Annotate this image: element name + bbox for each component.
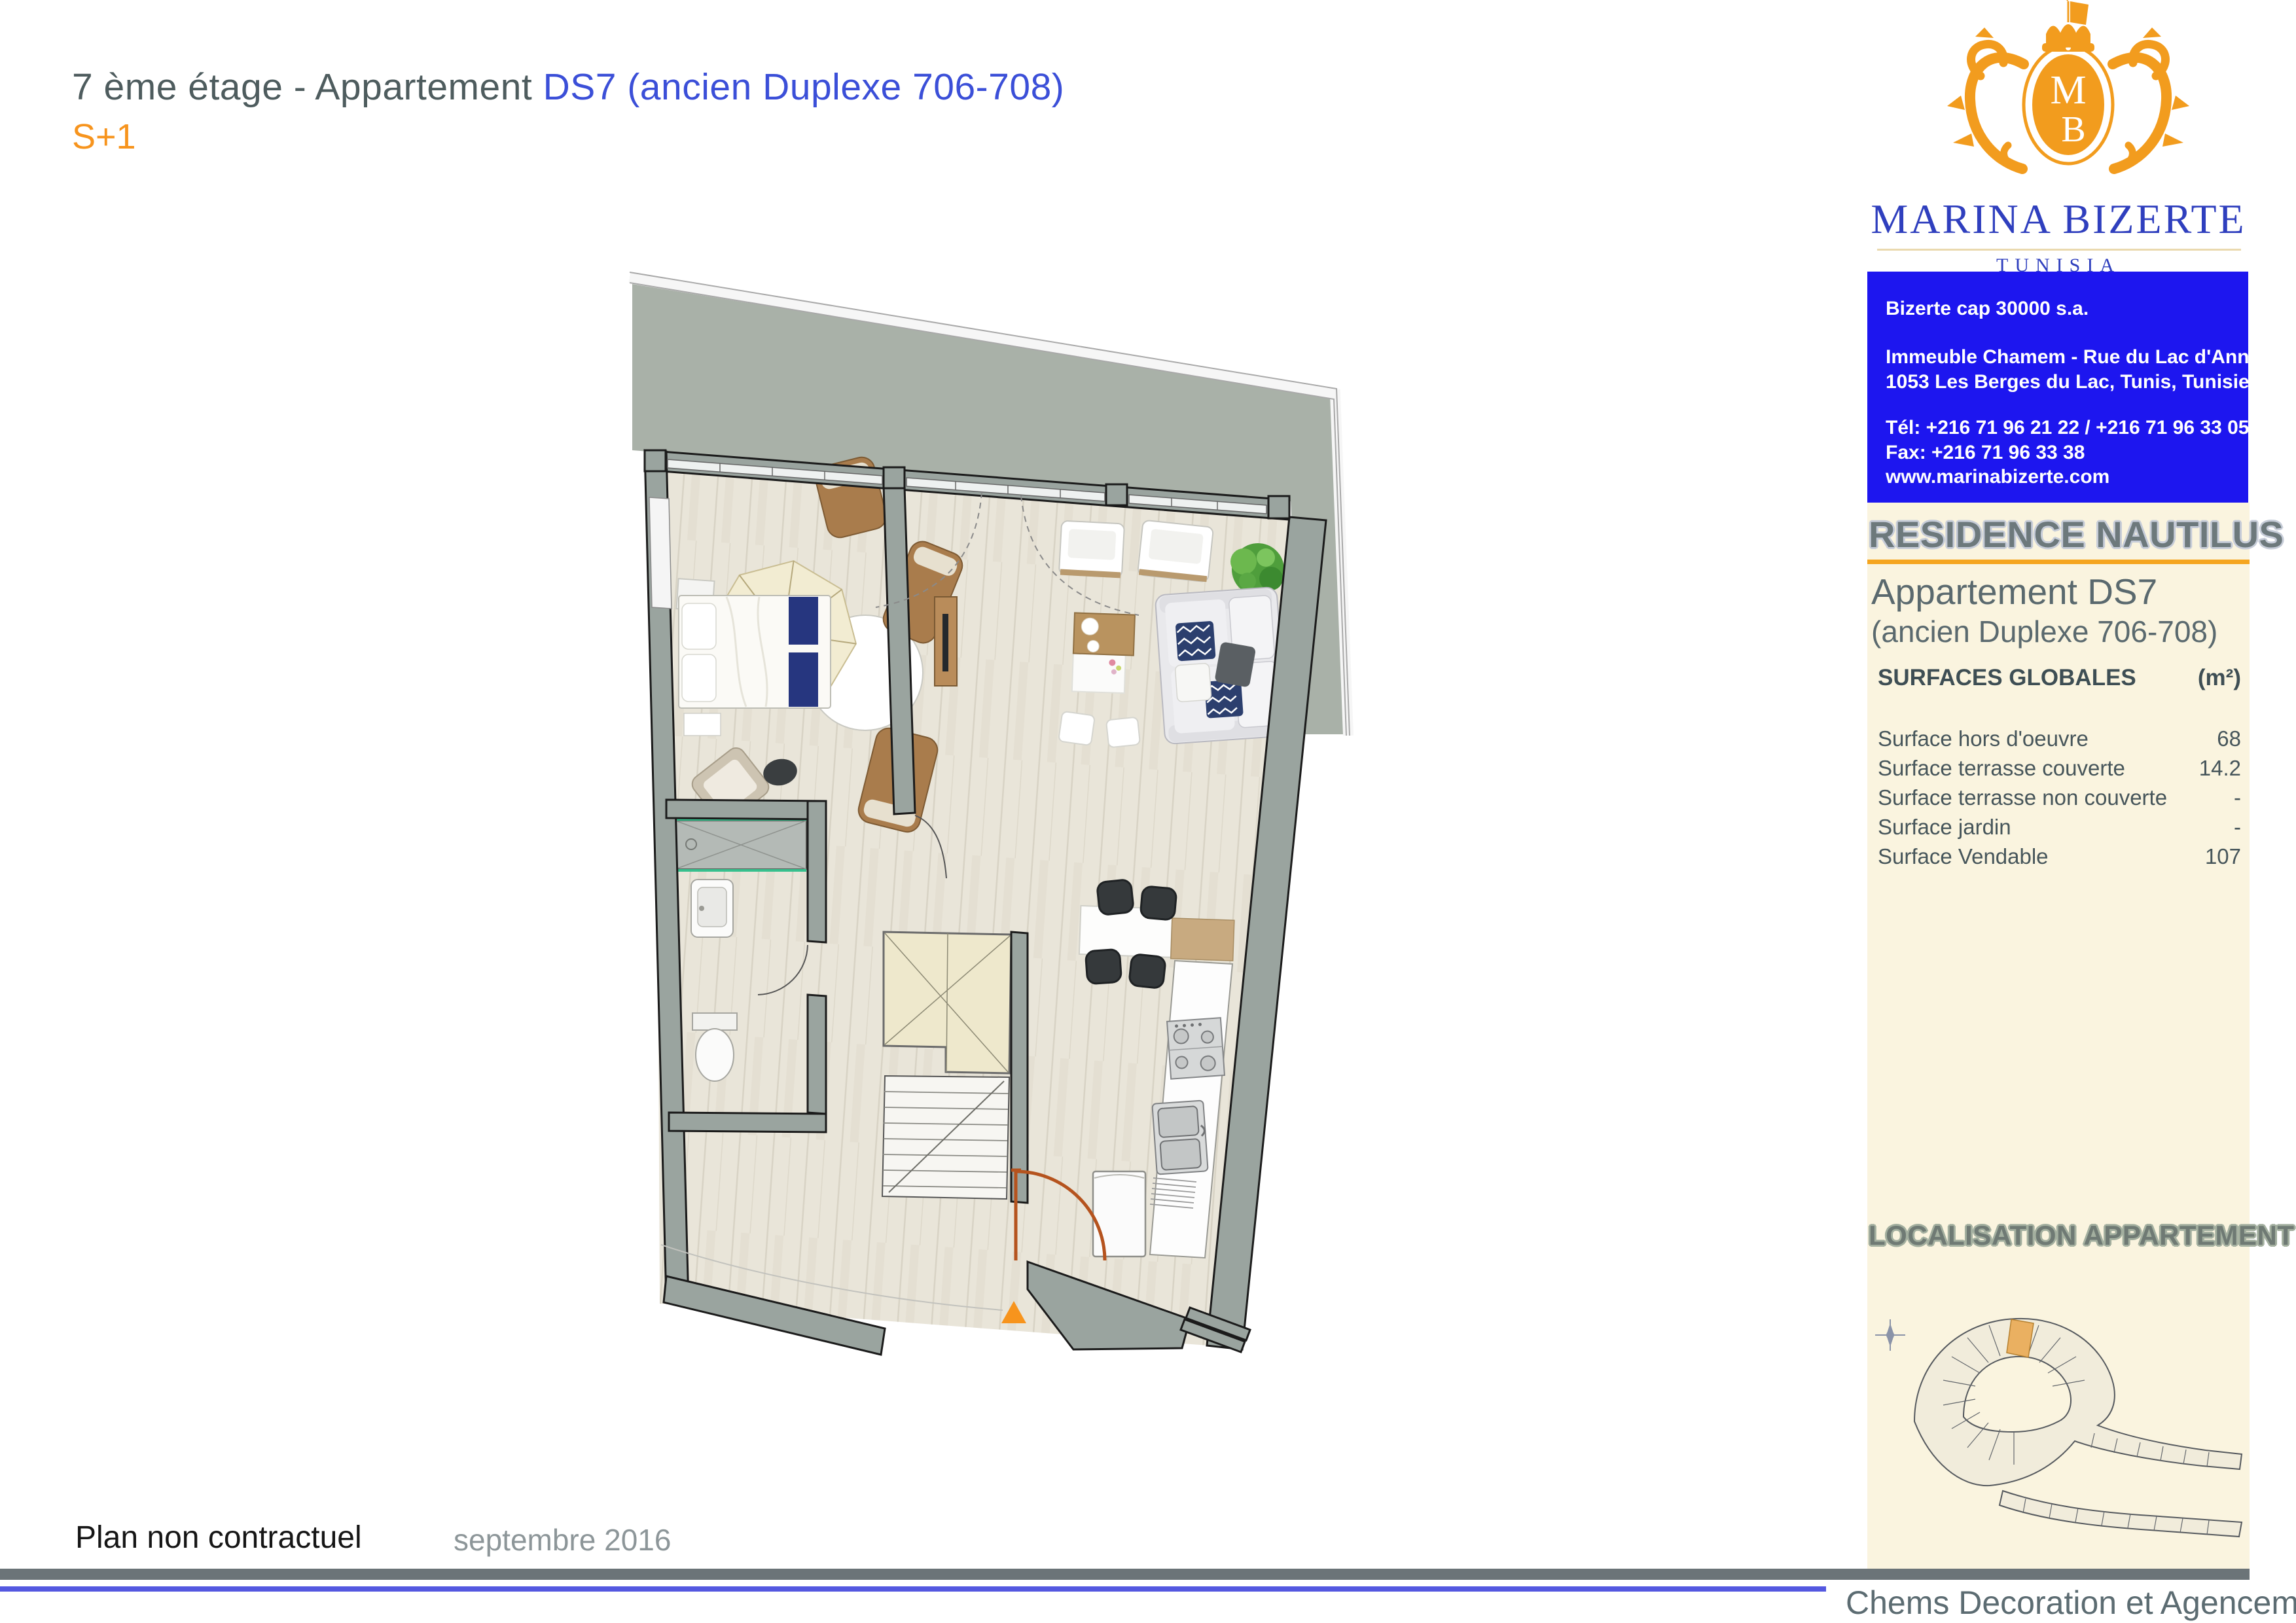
floor-cushion — [1106, 717, 1140, 748]
floor-cushion — [1058, 711, 1095, 746]
surface-row: Surface terrasse couverte 14.2 — [1878, 753, 2241, 783]
dining-chair — [1129, 954, 1166, 988]
contact-company: Bizerte cap 30000 s.a. — [1886, 298, 2089, 320]
highlighted-unit — [2007, 1319, 2034, 1357]
wall-shaft-right — [1011, 932, 1028, 1203]
fridge — [1093, 1171, 1145, 1257]
apartment-subtitle: (ancien Duplexe 706-708) — [1871, 614, 2217, 649]
surface-value: 14.2 — [2199, 756, 2241, 781]
tv-console — [935, 597, 957, 686]
wall-bath-right-upper — [808, 801, 826, 942]
monogram-m: M — [2050, 68, 2086, 113]
pillar — [884, 467, 905, 488]
footer-accent-line — [0, 1586, 1826, 1592]
floor-plan — [615, 242, 1374, 1381]
footer-bar — [0, 1569, 2250, 1580]
page-subtitle: S+1 — [72, 116, 136, 157]
footer-disclaimer: Plan non contractuel — [75, 1520, 362, 1556]
brand-name: MARINA BIZERTE — [1867, 195, 2250, 243]
seahorse-right — [2113, 27, 2189, 169]
wall-bath-right-lower — [808, 995, 826, 1114]
surface-label: Surface terrasse non couverte — [1878, 785, 2167, 810]
footer-credit: Chems Decoration et Agencement — [1846, 1584, 2219, 1622]
contact-fax: Fax: +216 71 96 33 38 — [1886, 442, 2085, 464]
bathroom-sink — [691, 880, 733, 937]
toilet — [692, 1013, 737, 1081]
nightstand — [684, 713, 721, 736]
wall-bath-top — [666, 800, 826, 819]
residence-underline — [1867, 560, 2250, 564]
dining-chair — [1085, 949, 1121, 984]
stove — [1167, 1018, 1225, 1079]
surfaces-header-unit: (m²) — [2198, 665, 2241, 691]
pillow — [1175, 663, 1211, 702]
contact-box: Bizerte cap 30000 s.a. Immeuble Chamem -… — [1867, 272, 2248, 503]
pillow — [1214, 641, 1256, 687]
localisation-map — [1875, 1283, 2251, 1544]
marina-bizerte-crest-logo: M B — [1947, 0, 2189, 196]
surfaces-header-label: SURFACES GLOBALES — [1878, 665, 2136, 691]
surface-value: - — [2234, 815, 2241, 840]
surface-row: Surface hors d'oeuvre 68 — [1878, 724, 2241, 753]
surface-row: Surface terrasse non couverte - — [1878, 783, 2241, 812]
dining-chair — [1140, 886, 1177, 920]
bed — [679, 596, 831, 708]
residence-title: RESIDENCE NAUTILUS — [1869, 513, 2284, 556]
surface-row: Surface Vendable 107 — [1878, 842, 2241, 871]
shower — [675, 819, 806, 870]
page-title-highlight: DS7 (ancien Duplexe 706-708) — [543, 66, 1065, 108]
stairs — [882, 1076, 1009, 1199]
contact-address-1: Immeuble Chamem - Rue du Lac d'Annecy, — [1886, 346, 2286, 368]
surface-label: Surface terrasse couverte — [1878, 756, 2125, 781]
building-footprint — [1914, 1319, 2242, 1537]
surface-label: Surface jardin — [1878, 815, 2011, 840]
pillar — [1106, 484, 1127, 505]
kitchen-sink — [1152, 1100, 1208, 1174]
localisation-title: LOCALISATION APPARTEMENT — [1869, 1220, 2295, 1251]
footer-date: septembre 2016 — [454, 1522, 671, 1558]
surface-label: Surface Vendable — [1878, 844, 2049, 869]
armchair — [1059, 521, 1124, 579]
seahorse-left — [1947, 27, 2024, 169]
contact-phone: Tél: +216 71 96 21 22 / +216 71 96 33 05 — [1886, 417, 2249, 439]
dining-chair — [1097, 879, 1134, 915]
brand-underline — [1877, 249, 2241, 251]
contact-website[interactable]: www.marinabizerte.com — [1886, 466, 2109, 488]
info-panel: RESIDENCE NAUTILUS Appartement DS7 (anci… — [1867, 503, 2250, 1569]
compass-icon — [1875, 1319, 1905, 1351]
contact-address-2: 1053 Les Berges du Lac, Tunis, Tunisie. — [1886, 371, 2255, 393]
surfaces-table: Surface hors d'oeuvre 68 Surface terrass… — [1878, 724, 2241, 871]
surface-label: Surface hors d'oeuvre — [1878, 726, 2089, 751]
sofa — [1155, 587, 1287, 744]
surface-row: Surface jardin - — [1878, 812, 2241, 842]
zigzag-pillow — [1175, 621, 1216, 662]
pillar — [645, 450, 666, 471]
monogram-b: B — [2061, 109, 2085, 150]
surfaces-header: SURFACES GLOBALES (m²) — [1878, 665, 2241, 691]
pillar — [1268, 496, 1289, 518]
apartment-title: Appartement DS7 — [1871, 571, 2157, 613]
wall-bath-bottom — [669, 1113, 826, 1132]
surface-value: - — [2234, 785, 2241, 810]
armchair — [1138, 520, 1213, 582]
page-title: 7 ème étage - Appartement DS7 (ancien Du… — [72, 65, 1064, 109]
surface-value: 68 — [2217, 726, 2241, 751]
page-title-prefix: 7 ème étage - Appartement — [72, 66, 543, 108]
surface-value: 107 — [2205, 844, 2241, 869]
